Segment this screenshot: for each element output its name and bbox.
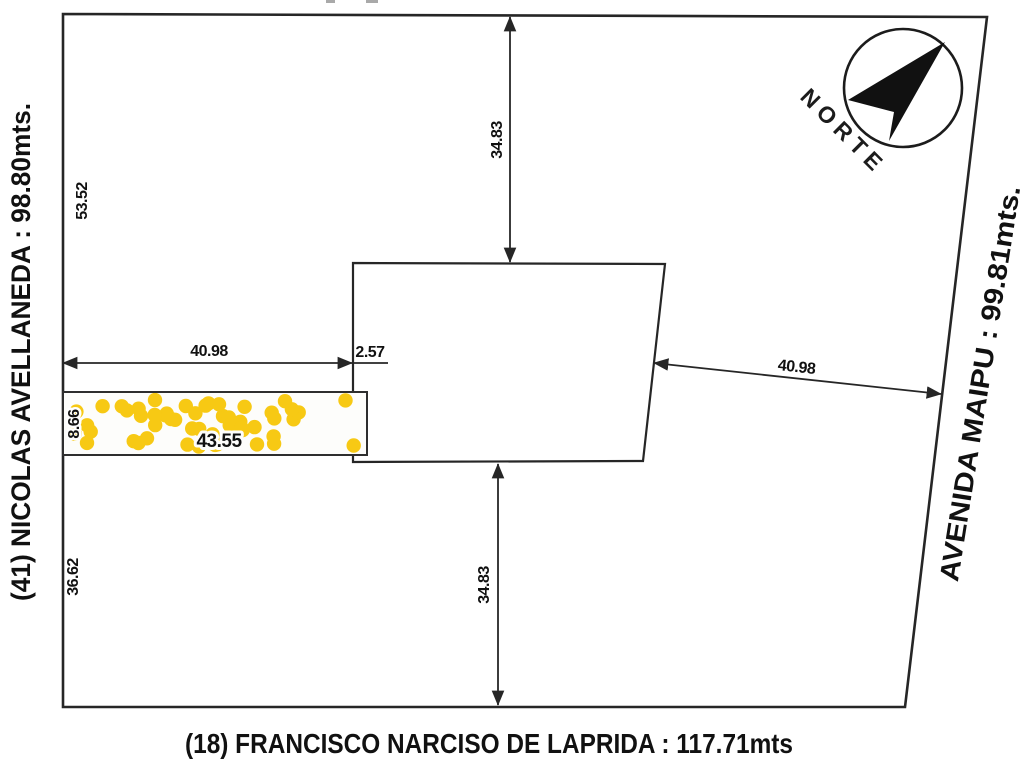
hatch-dot [95, 399, 109, 413]
survey-plan-page: 34.83 34.83 40.98 2.57 40.98 53.52 36.62… [0, 0, 1024, 768]
hatch-dot [347, 438, 361, 452]
hatch-dot [250, 437, 264, 451]
dim-value-bottom-depth: 34.83 [476, 566, 493, 604]
dim-value-left-upper: 53.52 [74, 182, 91, 220]
dim-value-gap: 2.57 [355, 344, 385, 361]
dim-strip-width: 40.98 2.57 [63, 343, 388, 363]
hatch-dot [84, 425, 98, 439]
hatch-dot [267, 411, 281, 425]
dim-top-depth: 34.83 [489, 17, 510, 262]
north-compass: NORTE [795, 29, 962, 180]
dim-value-strip-length: 43.55 [196, 431, 242, 452]
hatch-dot [148, 408, 162, 422]
street-label-nicolas-avellaneda: (41) NICOLAS AVELLANEDA : 98.80mts. [6, 103, 36, 601]
hatch-dot [212, 397, 226, 411]
north-arrow-icon [848, 42, 945, 141]
dim-value-right-width: 40.98 [777, 357, 817, 378]
dim-value-strip-height: 8.66 [66, 409, 83, 439]
hatch-dot [115, 399, 129, 413]
hatch-dot [267, 437, 281, 451]
survey-plan-drawing: 34.83 34.83 40.98 2.57 40.98 53.52 36.62… [0, 0, 1024, 768]
hatch-dot [278, 394, 292, 408]
dim-bottom-depth: 34.83 [476, 464, 498, 705]
cropped-top-text-fragment [366, 0, 378, 3]
hatch-dot [140, 431, 154, 445]
street-label-francisco-narciso-de-laprida: (18) FRANCISCO NARCISO DE LAPRIDA : 117.… [185, 728, 793, 759]
hatch-dot [148, 393, 162, 407]
hatch-dot [131, 402, 145, 416]
dim-value-left-lower: 36.62 [65, 558, 82, 596]
hatch-dot [237, 400, 251, 414]
street-label-avenida-maipu: AVENIDA MAIPU : 99.81mts. [934, 184, 1024, 584]
dim-right-width: 40.98 [654, 357, 941, 394]
hatch-dot [247, 420, 261, 434]
dim-value-top-depth: 34.83 [489, 121, 506, 159]
dim-value-strip-width: 40.98 [190, 343, 228, 360]
building-outline [353, 263, 665, 462]
hatch-dot [338, 393, 352, 407]
cropped-top-text-fragment [326, 0, 335, 3]
